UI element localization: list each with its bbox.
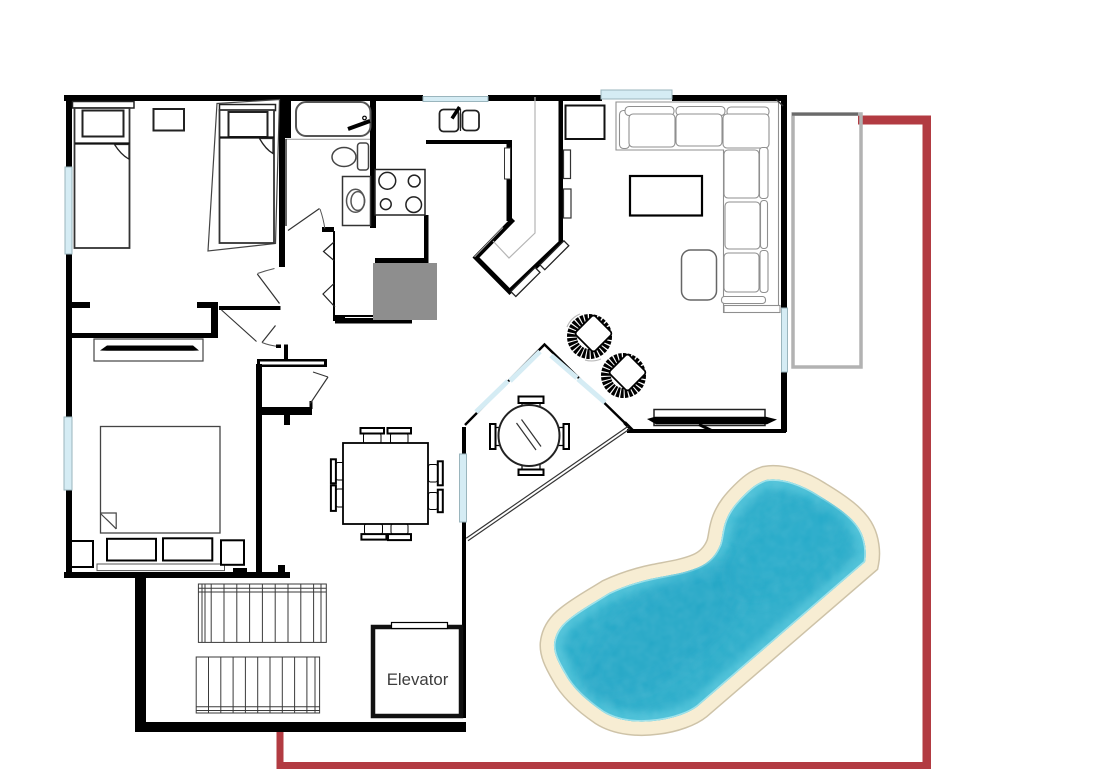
svg-text:Elevator: Elevator [387,670,449,689]
